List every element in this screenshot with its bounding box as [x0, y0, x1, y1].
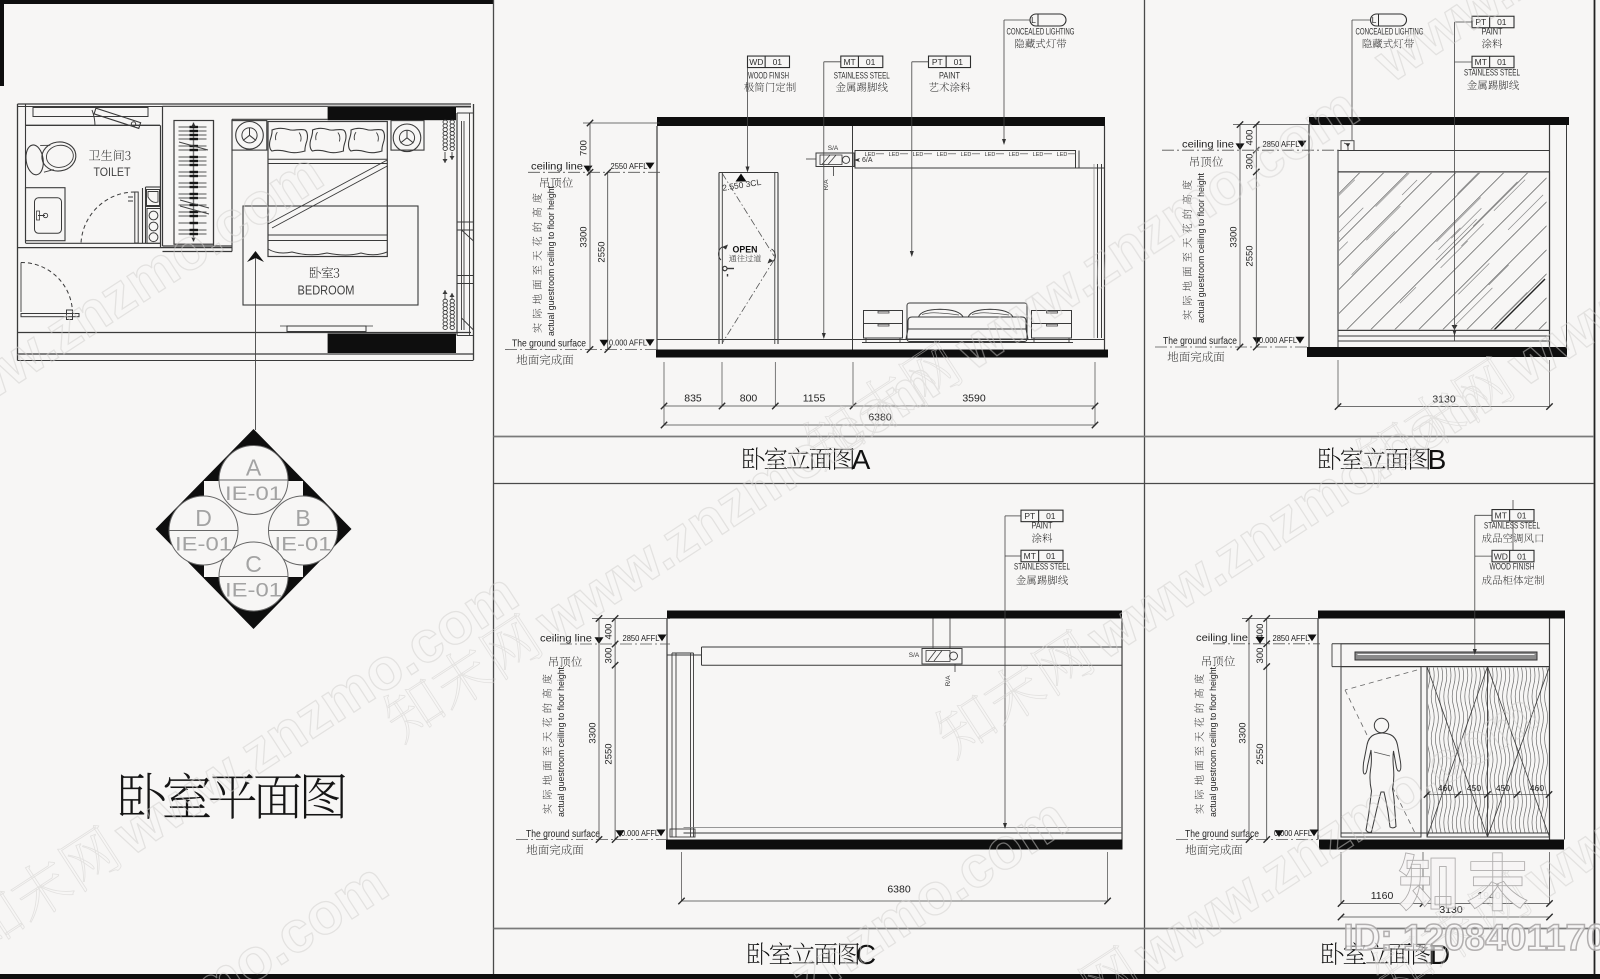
svg-text:LED: LED — [1009, 152, 1020, 158]
svg-text:01: 01 — [1517, 511, 1527, 521]
svg-text:LED: LED — [985, 152, 996, 158]
svg-text:450: 450 — [1496, 783, 1510, 793]
svg-text:3590: 3590 — [962, 393, 986, 405]
svg-text:2550: 2550 — [1245, 245, 1256, 266]
svg-text:LED: LED — [889, 152, 900, 158]
svg-text:The ground surface: The ground surface — [512, 338, 586, 350]
svg-text:3300: 3300 — [588, 722, 599, 743]
svg-text:STAINLESS STEEL: STAINLESS STEEL — [1484, 521, 1540, 531]
svg-text:3300: 3300 — [579, 226, 590, 247]
svg-text:D: D — [195, 505, 212, 531]
svg-text:LED: LED — [1033, 152, 1044, 158]
svg-text:IE-01: IE-01 — [175, 535, 232, 556]
svg-text:MT: MT — [1495, 511, 1507, 521]
svg-text:3300: 3300 — [1229, 226, 1240, 247]
svg-text:WOOD FINISH: WOOD FINISH — [1490, 562, 1535, 572]
svg-text:PT: PT — [932, 57, 943, 67]
svg-text:actual guestroom ceiling to fl: actual guestroom ceiling to floor height — [546, 186, 557, 336]
svg-text:The ground surface: The ground surface — [526, 828, 600, 840]
svg-text:3300: 3300 — [1238, 722, 1249, 743]
svg-text:WD: WD — [749, 57, 763, 67]
svg-text:1155: 1155 — [803, 393, 826, 405]
svg-text:actual guestroom ceiling to fl: actual guestroom ceiling to floor height — [556, 667, 567, 817]
svg-text:LED: LED — [1057, 152, 1068, 158]
svg-text:STAINLESS STEEL: STAINLESS STEEL — [834, 71, 890, 81]
svg-text:2850 AFFL: 2850 AFFL — [1273, 633, 1310, 643]
svg-text:LED: LED — [937, 152, 948, 158]
svg-text:LED: LED — [961, 152, 972, 158]
svg-text:STAINLESS STEEL: STAINLESS STEEL — [1014, 562, 1070, 572]
svg-text:CONCEALED LIGHTING: CONCEALED LIGHTING — [1007, 27, 1075, 37]
svg-text:0.000 AFFL: 0.000 AFFL — [1259, 335, 1297, 345]
svg-text:2550: 2550 — [1255, 743, 1266, 764]
svg-text:ceiling line: ceiling line — [531, 161, 583, 173]
svg-text:BEDROOM: BEDROOM — [298, 284, 355, 298]
svg-text:MT: MT — [1024, 551, 1036, 561]
svg-text:MT: MT — [843, 57, 855, 67]
svg-text:460: 460 — [1530, 783, 1544, 793]
svg-text:The ground surface: The ground surface — [1185, 828, 1259, 840]
svg-text:S/A: S/A — [909, 652, 920, 659]
svg-text:TOILET: TOILET — [94, 167, 131, 179]
svg-text:0.000 AFFL: 0.000 AFFL — [609, 338, 647, 348]
svg-text:ceiling line: ceiling line — [1196, 632, 1248, 644]
svg-text:S/A: S/A — [828, 145, 839, 152]
svg-text:01: 01 — [1517, 551, 1527, 561]
svg-text:2550 AFFL: 2550 AFFL — [611, 161, 648, 171]
svg-text:01: 01 — [1046, 551, 1056, 561]
svg-text:01: 01 — [866, 57, 876, 67]
svg-text:2550: 2550 — [597, 241, 608, 262]
svg-text:The ground surface: The ground surface — [1163, 335, 1237, 347]
svg-text:400: 400 — [604, 624, 615, 640]
svg-text:WOOD FINISH: WOOD FINISH — [748, 71, 789, 81]
svg-text:700: 700 — [579, 140, 590, 156]
svg-text:IE-01: IE-01 — [275, 535, 332, 556]
svg-text:PAINT: PAINT — [939, 71, 960, 81]
svg-text:B: B — [295, 505, 310, 531]
svg-text:IE-01: IE-01 — [225, 484, 282, 505]
svg-text:1160: 1160 — [1371, 890, 1394, 902]
svg-text:2550: 2550 — [604, 743, 615, 764]
svg-text:ID: 1208401170: ID: 1208401170 — [1343, 917, 1600, 958]
svg-text:IE-01: IE-01 — [225, 581, 282, 602]
svg-text:actual guestroom ceiling to fl: actual guestroom ceiling to floor height — [1208, 667, 1219, 817]
svg-text:WD: WD — [1494, 551, 1508, 561]
svg-text:MT: MT — [1475, 57, 1487, 67]
svg-text:LED: LED — [913, 152, 924, 158]
svg-text:300: 300 — [1255, 648, 1266, 664]
svg-text:6/A: 6/A — [862, 157, 873, 164]
svg-text:01: 01 — [1497, 57, 1507, 67]
svg-text:01: 01 — [773, 57, 783, 67]
svg-text:R/A: R/A — [945, 675, 952, 687]
svg-text:L: L — [1031, 15, 1036, 25]
svg-text:300: 300 — [604, 648, 615, 664]
svg-text:2850 AFFL: 2850 AFFL — [623, 633, 660, 643]
svg-text:PAINT: PAINT — [1032, 521, 1053, 531]
svg-text:OPEN: OPEN — [733, 245, 758, 255]
svg-text:STAINLESS STEEL: STAINLESS STEEL — [1464, 68, 1520, 78]
svg-text:A: A — [246, 455, 262, 481]
svg-text:800: 800 — [740, 393, 758, 405]
svg-text:0.000 AFFL: 0.000 AFFL — [621, 828, 659, 838]
svg-text:400: 400 — [1255, 624, 1266, 640]
svg-text:835: 835 — [684, 393, 702, 405]
svg-text:L: L — [1372, 15, 1377, 25]
svg-text:01: 01 — [954, 57, 964, 67]
svg-text:C: C — [245, 551, 262, 577]
